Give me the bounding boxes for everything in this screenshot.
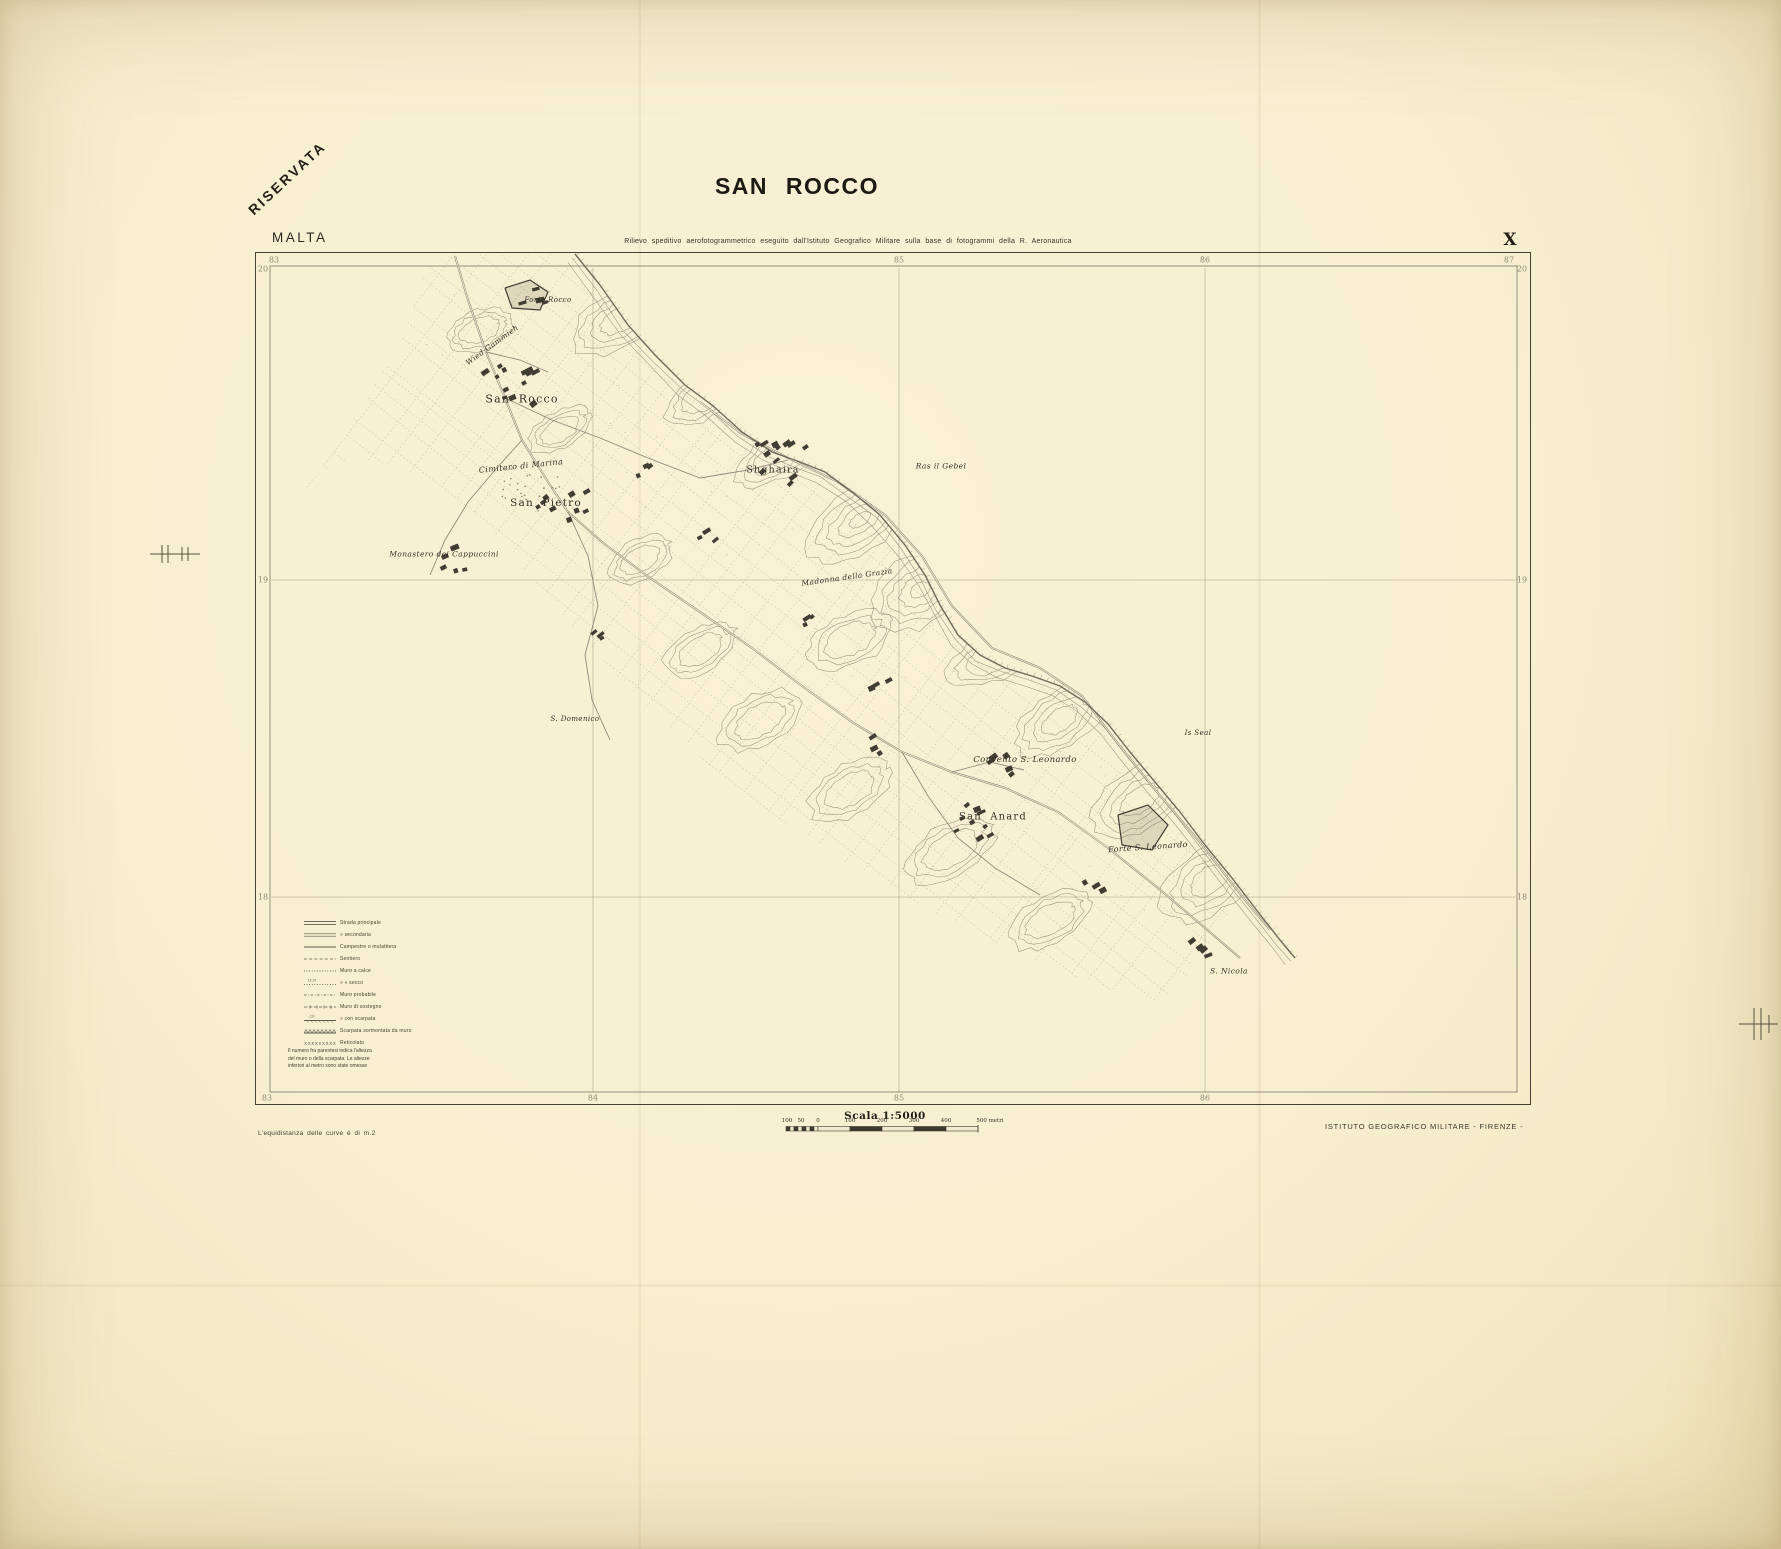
legend-item-label: Reticolato bbox=[340, 1040, 364, 1046]
legend-note-line: Il numero fra parentesi indica l'altezza bbox=[288, 1048, 408, 1056]
grid-tick-label: 83 bbox=[269, 256, 279, 265]
equidistance-note: L'equidistanza delle curve è di m.2 bbox=[258, 1130, 376, 1137]
grid-tick-label: 85 bbox=[894, 256, 904, 265]
legend-item: Muro probabile bbox=[300, 990, 510, 1002]
legend-item-label: » secondaria bbox=[340, 932, 371, 938]
legend-symbol-wall-probable bbox=[302, 990, 338, 1000]
map-label: S. Nicola bbox=[1210, 967, 1248, 976]
registration-mark-left bbox=[148, 538, 204, 570]
buildings bbox=[440, 286, 1213, 958]
map-subtitle: Rilievo speditivo aerofotogrammetrico es… bbox=[624, 238, 1071, 245]
grid-tick-label: 87 bbox=[1504, 256, 1514, 265]
grid-tick-label: 20 bbox=[1517, 265, 1527, 274]
map-label: Convento S. Leonardo bbox=[973, 755, 1077, 765]
map-label: San Rocco bbox=[485, 393, 558, 406]
map-sheet: RISERVATA MALTA SAN ROCCO Rilievo spedit… bbox=[0, 0, 1781, 1549]
grid-tick-label: 83 bbox=[262, 1094, 272, 1103]
legend-item: (3)» con scarpata bbox=[300, 1014, 510, 1026]
grid-tick-label: 19 bbox=[258, 576, 268, 585]
legend-symbol-wall-retaining bbox=[302, 1002, 338, 1012]
legend-item: Strada principale bbox=[300, 918, 510, 930]
svg-text:xxxxxxxxx: xxxxxxxxx bbox=[304, 1041, 337, 1047]
legend-item: (3,5)» » secco bbox=[300, 978, 510, 990]
grid-tick-label: 19 bbox=[1517, 576, 1527, 585]
coastline bbox=[575, 253, 1298, 958]
classification-stamp: RISERVATA bbox=[245, 138, 329, 218]
legend-item-label: Muro di sostegno bbox=[340, 1004, 382, 1010]
legend-symbol-wall-dotted: (3,5) bbox=[302, 978, 338, 988]
grid-tick-label: 20 bbox=[258, 265, 268, 274]
legend-item-label: Muro probabile bbox=[340, 992, 376, 998]
map-label: Shghaira bbox=[746, 465, 799, 476]
legend-item-label: Strada principale bbox=[340, 920, 381, 926]
legend-item: Scarpata sormontata da muro bbox=[300, 1026, 510, 1038]
legend-symbol-wall-dotted bbox=[302, 966, 338, 976]
contour-lines bbox=[446, 258, 1292, 969]
legend-symbol-road-double-thin bbox=[302, 930, 338, 940]
map-label: San Anard bbox=[959, 812, 1027, 823]
map-label: Forte Rocco bbox=[524, 296, 571, 304]
grid-tick-label: 86 bbox=[1200, 1094, 1210, 1103]
legend-item: Campestre o mulattiera bbox=[300, 942, 510, 954]
map-label: Monastero dei Cappuccini bbox=[389, 550, 499, 559]
registration-mark-right bbox=[1738, 1004, 1780, 1044]
map-label: S. Domenico bbox=[551, 715, 600, 723]
legend-item: Muro di sostegno bbox=[300, 1002, 510, 1014]
legend-item-label: Campestre o mulattiera bbox=[340, 944, 396, 950]
sheet-number: X bbox=[1503, 230, 1516, 250]
svg-text:(3): (3) bbox=[309, 1014, 315, 1018]
legend-symbol-wall-scarp: (3) bbox=[302, 1014, 338, 1024]
legend-symbol-road-double bbox=[302, 918, 338, 928]
grid-tick-label: 85 bbox=[894, 1094, 904, 1103]
legend-item: Muro a calce bbox=[300, 966, 510, 978]
grid-tick-label: 84 bbox=[588, 1094, 598, 1103]
legend-item-label: » con scarpata bbox=[340, 1016, 376, 1022]
svg-text:(3,5): (3,5) bbox=[308, 978, 317, 982]
legend-item-label: » » secco bbox=[340, 980, 363, 986]
legend-symbol-scarp-wall bbox=[302, 1026, 338, 1036]
grid-tick-label: 18 bbox=[1517, 893, 1527, 902]
legend-symbol-road-single bbox=[302, 942, 338, 952]
legend-item: Sentiero bbox=[300, 954, 510, 966]
grid-tick-label: 86 bbox=[1200, 256, 1210, 265]
map-label: Is Seal bbox=[1185, 729, 1212, 737]
paper-fold-horizontal bbox=[0, 1284, 1781, 1287]
legend-note-line: del muro o della scarpata. Le altezze bbox=[288, 1056, 408, 1064]
map-title: SAN ROCCO bbox=[715, 173, 879, 200]
legend-item: » secondaria bbox=[300, 930, 510, 942]
legend-item-label: Scarpata sormontata da muro bbox=[340, 1028, 412, 1034]
grid-tick-label: 18 bbox=[258, 893, 268, 902]
region-label: MALTA bbox=[272, 230, 328, 245]
scale-bar bbox=[778, 1124, 1002, 1136]
map-label: Ras il Gebel bbox=[916, 462, 967, 471]
legend-symbol-path-dashed bbox=[302, 954, 338, 964]
vegetation-dots bbox=[371, 287, 1178, 910]
legend-note-line: inferiori al metro sono state omesse bbox=[288, 1063, 408, 1071]
publisher-imprint: ISTITUTO GEOGRAFICO MILITARE - FIRENZE - bbox=[1325, 1122, 1523, 1131]
roads bbox=[430, 256, 1270, 958]
legend-symbol-wire-fence: xxxxxxxxx bbox=[302, 1038, 338, 1048]
legend-item-label: Sentiero bbox=[340, 956, 360, 962]
legend-item-label: Muro a calce bbox=[340, 968, 371, 974]
map-label: San Pietro bbox=[510, 497, 582, 509]
